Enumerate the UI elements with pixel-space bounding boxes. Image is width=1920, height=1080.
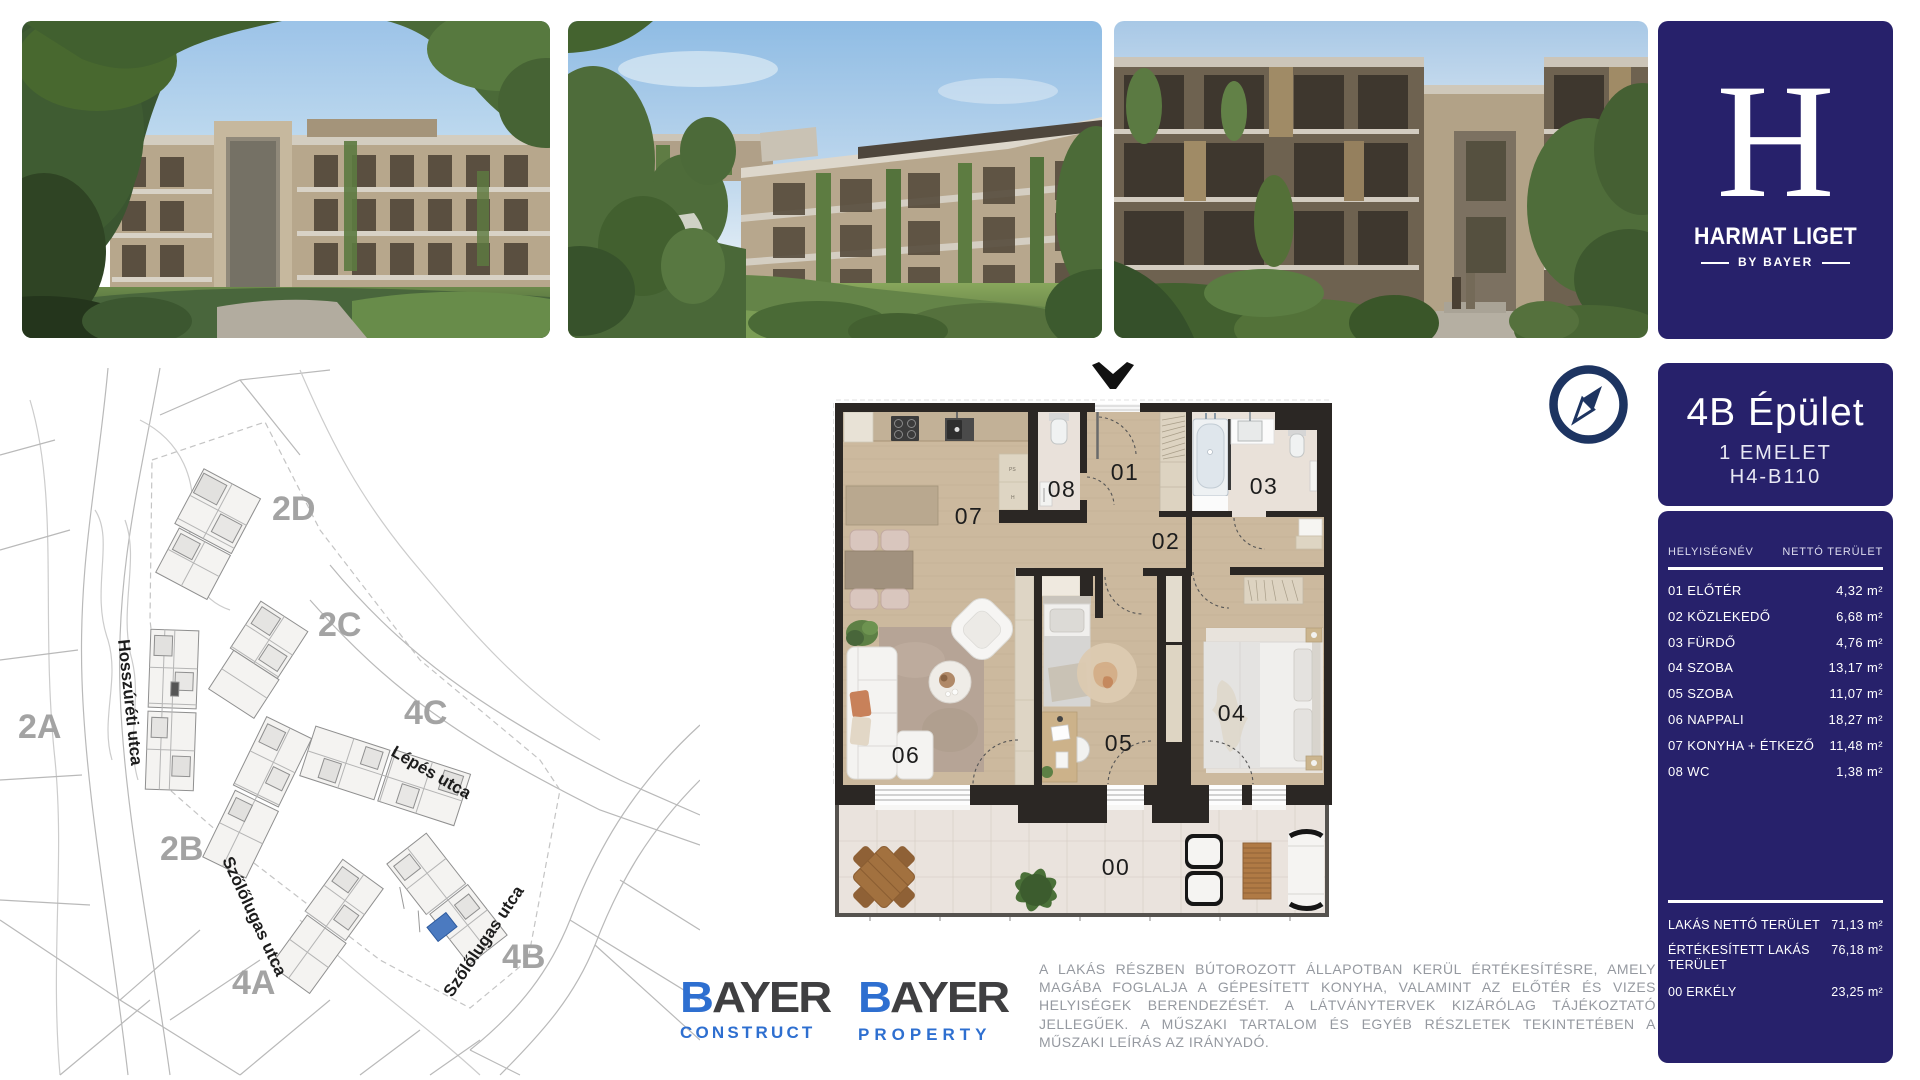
svg-text:Szőlőlugas utca: Szőlőlugas utca — [218, 854, 290, 980]
svg-text:07: 07 — [955, 503, 984, 529]
svg-text:2A: 2A — [18, 708, 61, 746]
svg-text:4B: 4B — [502, 938, 545, 976]
svg-text:05: 05 — [1105, 730, 1134, 756]
svg-text:H: H — [1011, 495, 1015, 501]
svg-text:Hosszúréti utca: Hosszúréti utca — [114, 638, 146, 766]
svg-text:00: 00 — [1102, 854, 1131, 880]
svg-text:06: 06 — [892, 742, 921, 768]
svg-text:01: 01 — [1111, 459, 1140, 485]
svg-text:03: 03 — [1250, 473, 1279, 499]
svg-text:4C: 4C — [404, 694, 447, 732]
svg-text:PS: PS — [1009, 467, 1016, 473]
svg-text:2D: 2D — [272, 490, 315, 528]
svg-text:08: 08 — [1048, 476, 1077, 502]
svg-text:2B: 2B — [160, 830, 203, 868]
svg-text:04: 04 — [1218, 700, 1247, 726]
svg-text:02: 02 — [1152, 528, 1181, 554]
svg-text:2C: 2C — [318, 606, 361, 644]
